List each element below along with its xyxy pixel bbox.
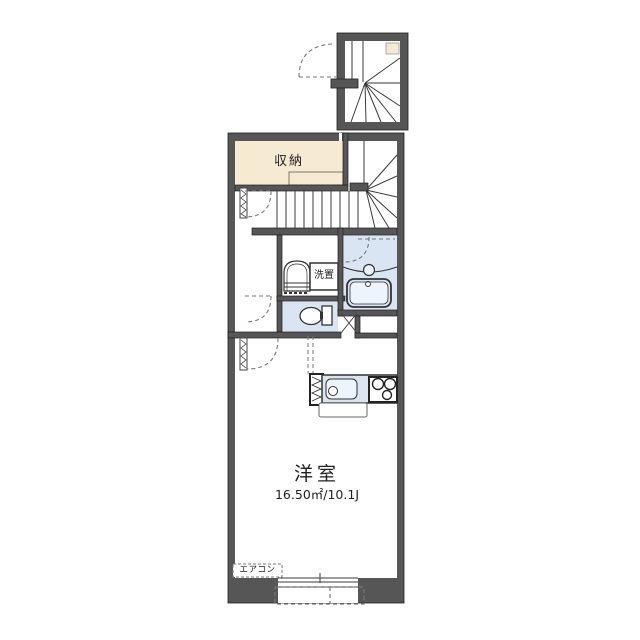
- stairwell-shelf: [386, 43, 399, 54]
- winder-wall-stub: [350, 183, 368, 191]
- entrance-stairwell: [299, 33, 408, 130]
- stove-icon: [369, 377, 397, 402]
- toilet-icon: [300, 306, 332, 325]
- top-wall-gap: [339, 133, 342, 141]
- washbasin-icon: [284, 261, 310, 293]
- main-room-label: 洋室: [247, 464, 387, 485]
- floor-plan: 収納 洗置 洋室 16.50㎡/10.1J エアコン: [0, 0, 640, 640]
- closet-label: 収納: [239, 155, 339, 169]
- unit-floor: [235, 141, 397, 578]
- counter-cabinet: [319, 403, 367, 417]
- stair-wall-stub: [331, 79, 358, 88]
- floor-plan-drawing: [0, 0, 640, 640]
- bath-faucet-icon: [364, 265, 375, 276]
- aircon-label: エアコン: [233, 566, 282, 575]
- main-room-area-label: 16.50㎡/10.1J: [237, 488, 397, 502]
- refrigerator-icon: [310, 374, 323, 405]
- bathtub-inner: [350, 282, 388, 304]
- closet-shelf-line: [289, 172, 343, 185]
- sink-icon: [326, 379, 357, 399]
- washer-place-label: 洗置: [309, 270, 339, 281]
- entrance-door-swing-icon: [299, 44, 336, 77]
